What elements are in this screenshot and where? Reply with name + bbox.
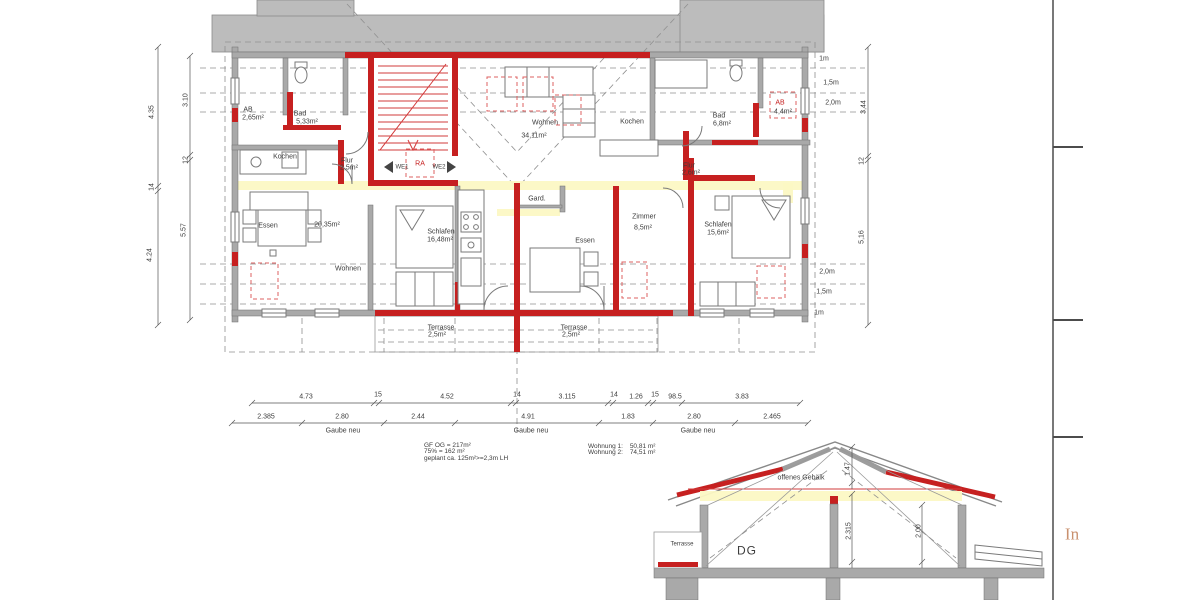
kitchen-counter-left [240,150,306,174]
roof-ridge-band [212,0,824,52]
apartment-2-label: Wohnung 2: [588,450,628,456]
kitchen-counter-right [655,60,707,88]
kitchen-counter-right-low [600,140,658,156]
sink-icon [461,238,481,252]
drawing-sheet: AB2,65m²Bad5,33m²KochenFlur2,5m²WE1RAWE2… [0,0,1200,600]
annotation-line-3: geplant ca. 125m²>=2,3m LH [424,456,508,462]
toilet-icon [295,62,307,83]
kitchen-block [458,190,484,304]
sheet-frame [1053,0,1083,600]
section-walls [700,496,966,568]
bed-left [396,206,453,306]
toilet-icon [730,60,742,81]
section-gutter [975,545,1042,566]
section-dim-lines [849,444,925,568]
staircase [374,58,456,180]
floor-plan-and-section-drawing [0,0,1200,600]
section-floor-slab [654,568,1044,578]
section-terrace [654,532,702,568]
apartment-2-area: 74,51 m² [630,450,656,456]
apartment-row-2: Wohnung 2: 74,51 m² [588,450,655,456]
apartment-area-list: Wohnung 1: 50,81 m² Wohnung 2: 74,51 m² [588,444,655,457]
area-annotation-block: GF OG = 217m² 75% = 162 m² geplant ca. 1… [424,443,508,462]
sideboard [250,192,308,210]
roof-section [654,442,1044,600]
